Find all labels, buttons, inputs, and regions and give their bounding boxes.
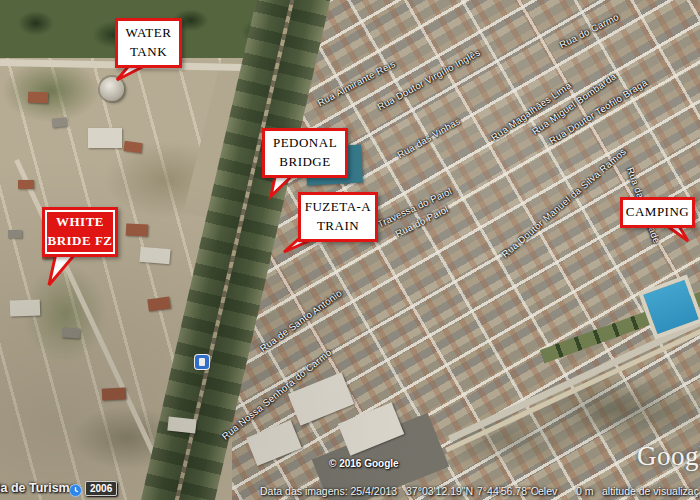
- tourism-credit-overlay: ia de Turismo: [0, 481, 77, 495]
- callout-camping: CAMPING: [620, 197, 695, 228]
- elevation-value: 0 m: [576, 485, 594, 497]
- google-earth-viewport: Rua Almirante Reis Rua Doutor Virgílio I…: [0, 0, 700, 500]
- callout-water-tank: WATER TANK: [115, 18, 182, 68]
- longitude-text: 7°44'56.78"O: [477, 485, 539, 497]
- callout-pedonal-bridge: PEDONAL BRIDGE: [262, 128, 348, 178]
- latitude-text: 37°03'12.19"N: [406, 485, 473, 497]
- elev-label: elev: [538, 485, 557, 497]
- callout-fuzeta-train: FUZETA-A TRAIN: [298, 192, 378, 242]
- view-altitude-label: altitude de visualização: [602, 485, 700, 497]
- callout-white-bride: WHITE BRIDE FZ: [42, 207, 118, 257]
- imagery-year-button[interactable]: 2006: [85, 481, 117, 496]
- callout-white-bride-tail: [49, 253, 76, 285]
- imagery-date-text: Data das imagens: 25/4/2013: [260, 485, 397, 497]
- historical-imagery-clock-icon[interactable]: [69, 483, 82, 496]
- copyright-text: © 2016 Google: [329, 458, 399, 469]
- google-logo: Google: [637, 441, 700, 472]
